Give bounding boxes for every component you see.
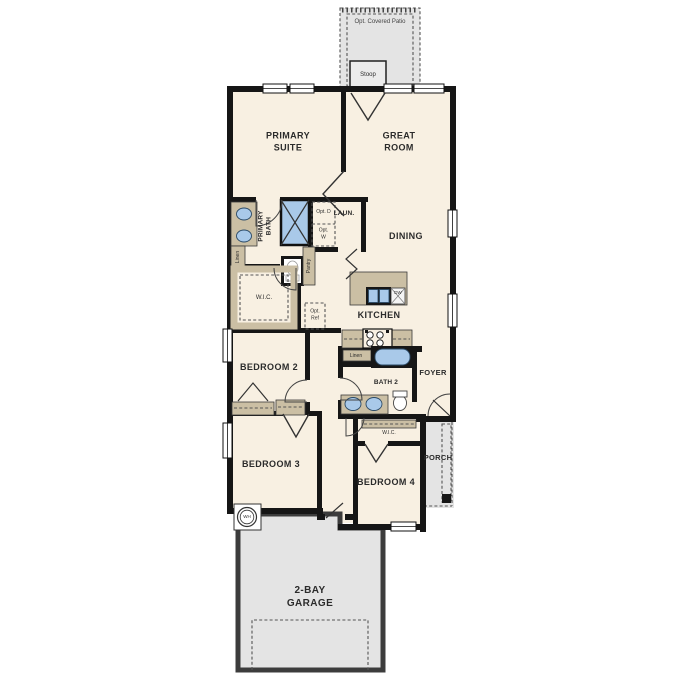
window [263, 84, 287, 93]
wall-bath2-bottom [338, 414, 426, 419]
burner-2 [377, 332, 383, 338]
porch-area [424, 422, 454, 508]
bath2-sink-2 [366, 398, 382, 411]
primary-bath-label: PRIMARY BATH [258, 203, 275, 249]
wall-primary-bottom-a [227, 197, 256, 202]
toilet2-tank [393, 391, 407, 397]
primary-sink-1 [237, 208, 252, 220]
pantry-label: Pantry [306, 259, 313, 273]
hall-floor [322, 411, 353, 523]
stoop-label: Stoop [360, 72, 376, 80]
laundry-label: LAUN. [334, 210, 355, 218]
wall-bedroom3-right [317, 411, 322, 514]
bath2-label: BATH 2 [374, 379, 398, 387]
floor-plan: Opt. Covered Patio Stoop PRIMARY SUITE G… [0, 0, 687, 687]
island-sink-basin-2 [380, 290, 390, 303]
bedroom4-label: BEDROOM 4 [357, 477, 415, 489]
window [223, 329, 232, 362]
window [391, 522, 416, 531]
water-heater-label: WH [243, 514, 251, 520]
wall-bedroom4-top-a [353, 441, 365, 446]
opt-washer-label: Opt. W [316, 228, 331, 241]
porch-label: PORCH [424, 453, 453, 463]
wall-primary-great-divider [341, 88, 346, 172]
wic-bedroom4-label: W.I.C. [382, 430, 396, 437]
garage-label: 2-BAY GARAGE [275, 584, 345, 610]
linen-primary-label: Linen [235, 251, 242, 263]
wall-garage-door-stub-a [317, 514, 325, 520]
linen-bath2-label: Linen [350, 353, 362, 360]
wall-bedroom4-right [420, 416, 426, 532]
wic-primary-label: W.I.C. [256, 295, 272, 303]
great-room-label: GREAT ROOM [374, 130, 424, 153]
bedroom3-label: BEDROOM 3 [242, 459, 300, 471]
window [448, 210, 457, 237]
wall-bedroom4-top-b [388, 441, 420, 446]
range-detail-1 [365, 330, 368, 333]
porch-column [442, 494, 451, 503]
kitchen-label: KITCHEN [358, 310, 401, 322]
tub [375, 349, 410, 365]
opt-dryer-label: Opt. D [316, 209, 331, 216]
bedroom2-label: BEDROOM 2 [240, 362, 298, 374]
window [414, 84, 444, 93]
island-sink-basin-1 [369, 290, 379, 303]
burner-4 [377, 340, 383, 346]
primary-suite-label: PRIMARY SUITE [255, 130, 321, 153]
window [223, 423, 232, 458]
wall-bedroom2-right-a [305, 328, 310, 380]
dishwasher-label: DW [394, 290, 402, 296]
window [384, 84, 412, 93]
burner-3 [367, 340, 373, 346]
window [290, 84, 314, 93]
window [448, 294, 457, 327]
dining-label: DINING [389, 231, 423, 243]
toilet2-icon [394, 396, 407, 411]
wall-bedroom4-left [353, 414, 358, 530]
primary-sink-2 [237, 230, 252, 242]
range-detail-2 [386, 330, 389, 333]
bedroom4-wic [362, 420, 416, 428]
opt-ref-label: Opt. Ref [307, 309, 323, 322]
bath2-sink-1 [345, 398, 361, 411]
patio-label: Opt. Covered Patio [354, 19, 405, 27]
wall-garage-door-stub-b [345, 514, 353, 520]
foyer-label: FOYER [419, 368, 446, 378]
wall-laundry-right [361, 197, 366, 252]
wall-right [450, 86, 456, 422]
